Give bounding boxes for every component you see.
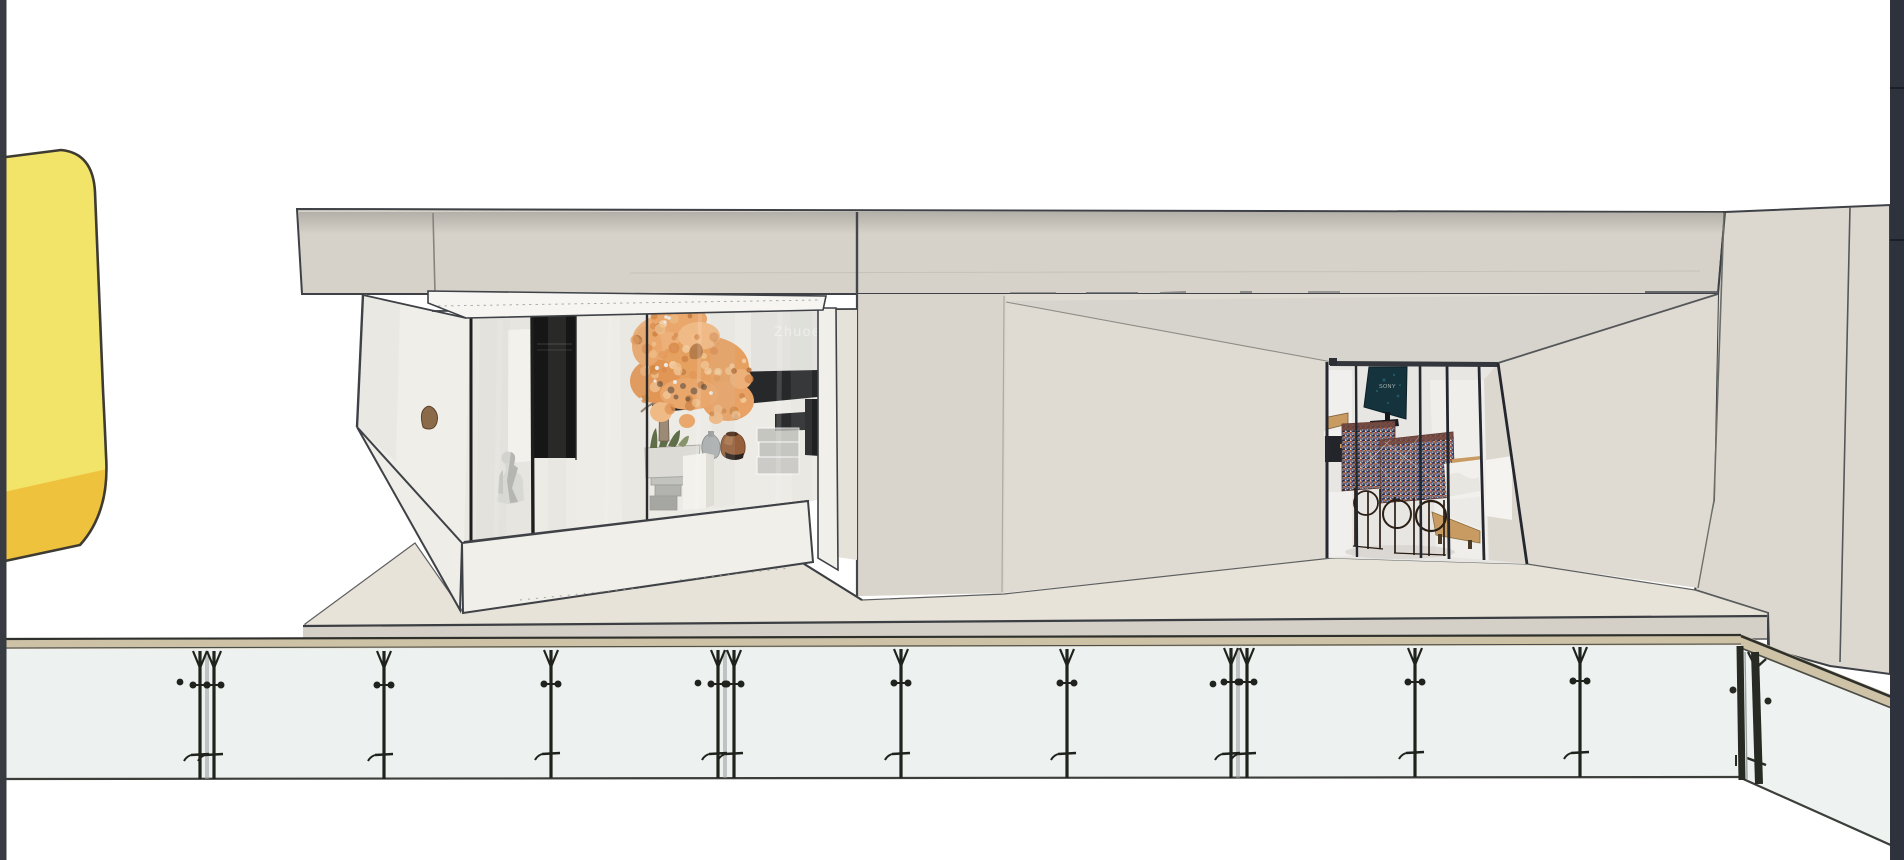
svg-text:Zhuoe: Zhuoe xyxy=(774,323,821,339)
svg-text:SONY: SONY xyxy=(1379,384,1396,390)
